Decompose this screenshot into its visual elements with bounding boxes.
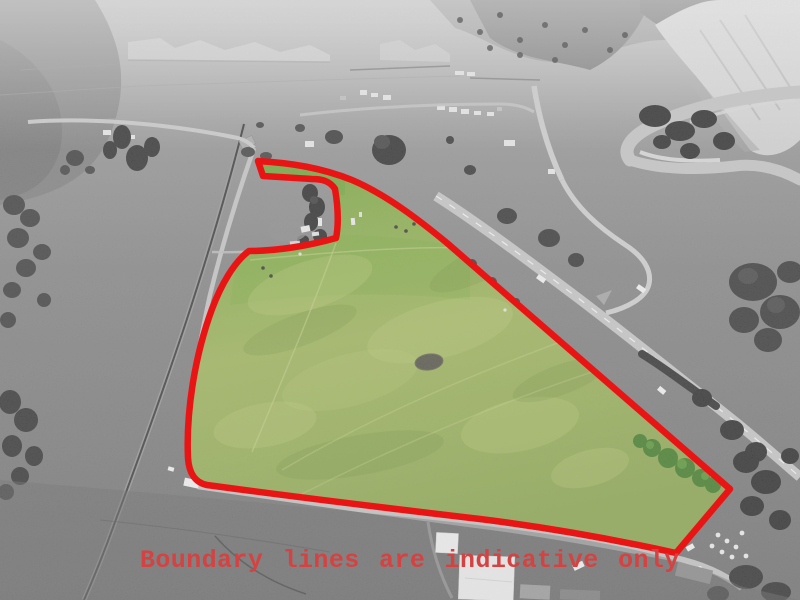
boundary-disclaimer-text: Boundary lines are indicative only [140,546,680,575]
aerial-listing-photo: Boundary lines are indicative only [0,0,800,600]
aerial-photo-canvas: Boundary lines are indicative only [0,0,800,600]
